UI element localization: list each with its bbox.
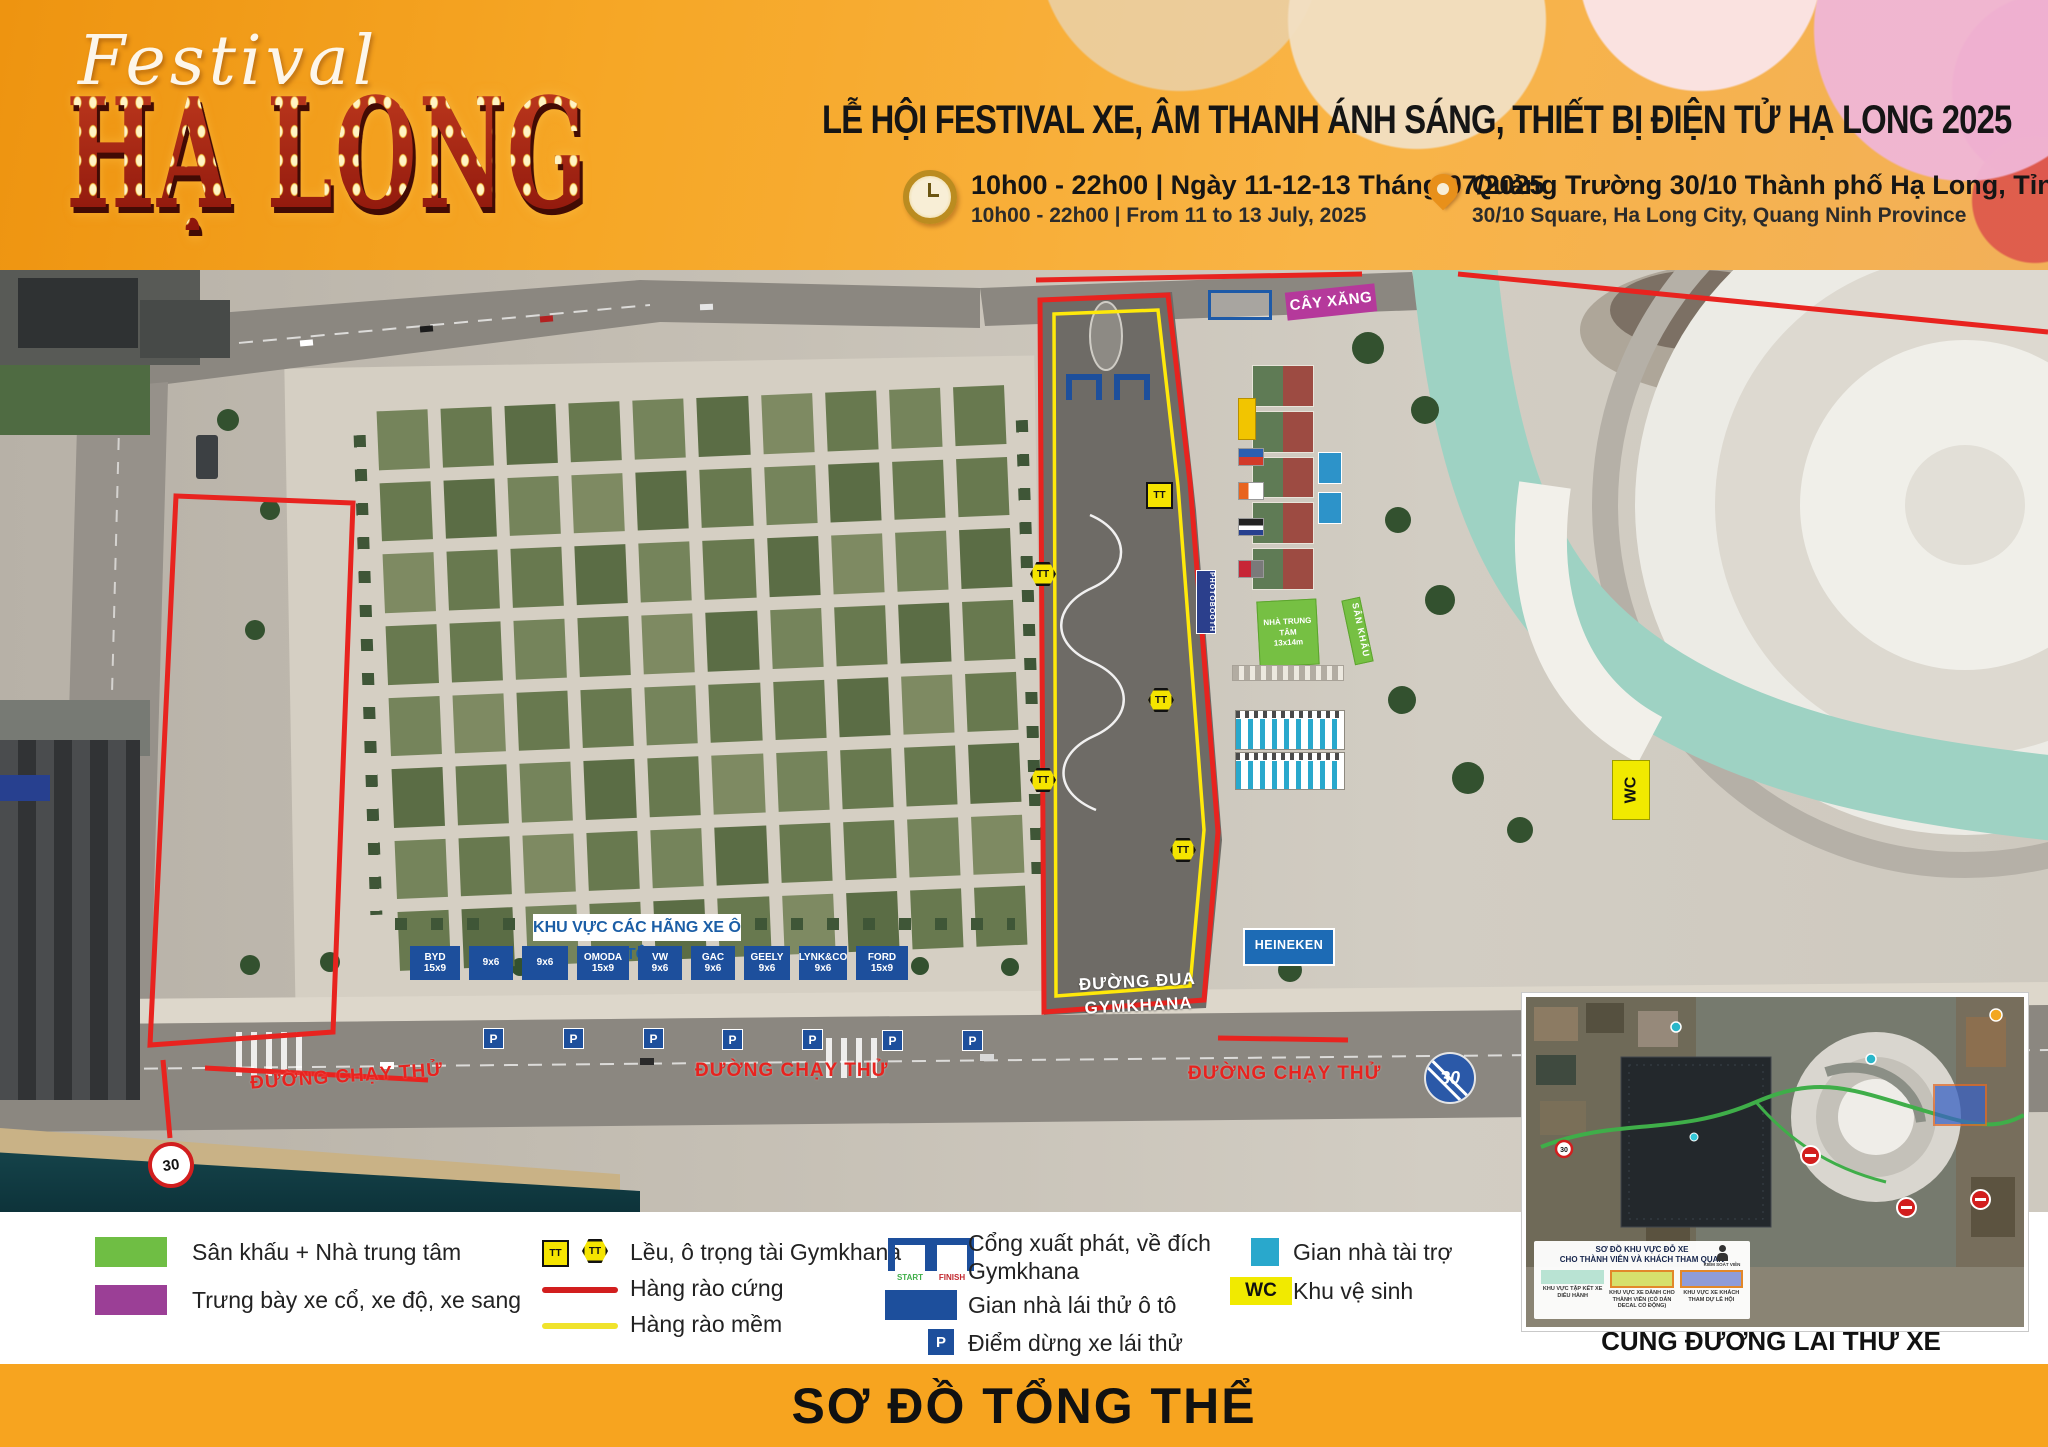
- strike-bar: [1428, 1056, 1473, 1101]
- brand-box-vw: VW9x6: [638, 946, 682, 980]
- wc-text: WC: [1622, 777, 1640, 804]
- test-drive-route-inset-map: 30 SƠ ĐỒ KHU VỰC ĐỖ XE CHO THÀNH VIÊN VÀ…: [1522, 993, 2028, 1331]
- legend-swatch-classic-cars: [95, 1285, 167, 1315]
- legend-tt-square: TT: [542, 1240, 569, 1267]
- sponsor-booth-blue: [1318, 492, 1342, 524]
- brand-box-byd: BYD15x9: [410, 946, 460, 980]
- legend-label: Hàng rào mềm: [630, 1311, 782, 1338]
- end-speed-limit-sign: 30: [1424, 1052, 1476, 1104]
- logo-marquee-text: HẠ LONG: [66, 78, 589, 230]
- photobooth-label: PHOTOBOOTH: [1196, 570, 1216, 634]
- gas-station-canopy: [1208, 290, 1272, 320]
- stop-point-marker: P: [962, 1030, 983, 1051]
- central-house-line2: 13x14m: [1259, 637, 1317, 650]
- inset-parking-legend: SƠ ĐỒ KHU VỰC ĐỖ XE CHO THÀNH VIÊN VÀ KH…: [1534, 1241, 1750, 1319]
- location-info: Quảng Trường 30/10 Thành phố Hạ Long, Tỉ…: [1428, 170, 2048, 228]
- sponsor-booth-blue: [1318, 452, 1342, 484]
- legend-swatch-stage: [95, 1237, 167, 1267]
- stop-point-marker: P: [722, 1029, 743, 1050]
- legend-label: Gian nhà tài trợ: [1293, 1239, 1453, 1266]
- legend-label: Điểm dừng xe lái thử: [968, 1330, 1183, 1357]
- start-caption: START: [888, 1273, 932, 1282]
- legend-sponsor-house-swatch: [1251, 1238, 1279, 1266]
- clock-icon: [903, 170, 957, 224]
- festival-map-poster: Festival HẠ LONG LỄ HỘI FESTIVAL XE, ÂM …: [0, 0, 2048, 1447]
- central-house-label: NHÀ TRUNG TÂM 13x14m: [1256, 598, 1319, 667]
- brand-box: 9x6: [469, 946, 513, 980]
- sponsor-house-row: [1235, 752, 1345, 790]
- zone-guests: KHU VỰC XE KHÁCH THAM DỰ LỄ HỘI: [1677, 1267, 1746, 1310]
- no-entry-sign: [1800, 1145, 1821, 1166]
- legend-label: Trưng bày xe cổ, xe độ, xe sang: [192, 1287, 521, 1314]
- wc-zone-label: WC: [1612, 760, 1650, 820]
- location-en: 30/10 Square, Ha Long City, Quang Ninh P…: [1472, 204, 2048, 228]
- zone-parade: KHU VỰC TẬP KẾT XE DIỄU HÀNH: [1538, 1267, 1607, 1310]
- brand-box-lynkco: LYNK&CO9x6: [799, 946, 847, 980]
- stop-point-marker: P: [802, 1029, 823, 1050]
- header-banner: Festival HẠ LONG LỄ HỘI FESTIVAL XE, ÂM …: [0, 0, 2048, 270]
- footer-bar: SƠ ĐỒ TỔNG THỂ: [0, 1364, 2048, 1447]
- finish-gate-icon: [1114, 374, 1150, 400]
- legend-label: Hàng rào cứng: [630, 1275, 784, 1302]
- legend-hard-fence-line: [542, 1287, 618, 1293]
- sponsor-logo-chip: [1238, 560, 1264, 578]
- brand-box-geely: GEELY9x6: [744, 946, 790, 980]
- legend-wc-swatch: WC: [1230, 1277, 1292, 1305]
- gymkhana-track-label: ĐƯỜNG ĐUA GYMKHANA: [1057, 966, 1219, 1022]
- referee-tent-marker: TT: [1146, 482, 1173, 509]
- car-brand-row: BYD15x9 9x6 9x6 OMODA15x9 VW9x6 GAC9x6 G…: [410, 946, 908, 980]
- map-pin-icon: [1422, 168, 1464, 210]
- brand-box-gac: GAC9x6: [691, 946, 735, 980]
- sponsor-logo-chip: [1238, 518, 1264, 536]
- legend-label: Sân khấu + Nhà trung tâm: [192, 1239, 461, 1266]
- stop-point-marker: P: [882, 1030, 903, 1051]
- legend-soft-fence-line: [542, 1323, 618, 1329]
- sponsor-logo-chip: [1238, 482, 1264, 500]
- legend-label: Gian nhà lái thử ô tô: [968, 1292, 1176, 1319]
- inset-zone-row: KHU VỰC TẬP KẾT XE DIỄU HÀNH KHU VỰC XE …: [1538, 1267, 1746, 1310]
- stop-point-marker: P: [483, 1028, 504, 1049]
- stop-point-marker: P: [563, 1028, 584, 1049]
- sponsor-house-row: [1235, 710, 1345, 750]
- test-road-label: ĐƯỜNG CHẠY THỬ: [695, 1060, 888, 1082]
- sponsor-court-grid: [1252, 365, 1314, 590]
- brand-box-omoda: OMODA15x9: [577, 946, 629, 980]
- controller-label: KIỂM SOÁT VIÊN: [1702, 1262, 1742, 1267]
- legend-start-gate: START: [888, 1238, 932, 1282]
- legend-tt-hexagon: TT: [582, 1239, 608, 1263]
- test-road-label: ĐƯỜNG CHẠY THỬ: [1188, 1063, 1381, 1085]
- legend-label: Cổng xuất phát, về đíchGymkhana: [968, 1230, 1211, 1285]
- no-entry-sign: [1896, 1197, 1917, 1218]
- zone-members: KHU VỰC XE DÀNH CHO THÀNH VIÊN (CÓ DÁN D…: [1607, 1267, 1676, 1310]
- start-gate-icon: [1066, 374, 1102, 400]
- brand-box-ford: FORD15x9: [856, 946, 908, 980]
- tent-row: [1232, 665, 1344, 681]
- controller-person-icon: KIỂM SOÁT VIÊN: [1702, 1245, 1742, 1267]
- legend-label: Lều, ô trọng tài Gymkhana: [630, 1239, 901, 1266]
- legend-label: Khu vệ sinh: [1293, 1278, 1413, 1305]
- event-title: LỄ HỘI FESTIVAL XE, ÂM THANH ÁNH SÁNG, T…: [822, 98, 2011, 143]
- brand-box: 9x6: [522, 946, 568, 980]
- svg-text:30: 30: [1560, 1147, 1568, 1154]
- overall-plan-title: SƠ ĐỒ TỔNG THỂ: [791, 1377, 1256, 1435]
- sponsor-logo-chip: [1238, 448, 1264, 466]
- stop-point-marker: P: [643, 1028, 664, 1049]
- car-brands-zone-title: KHU VỰC CÁC HÃNG XE Ô TÔ: [533, 914, 741, 941]
- no-entry-sign: [1970, 1189, 1991, 1210]
- legend-test-drive-house-swatch: [885, 1290, 957, 1320]
- sponsor-logo-chip-yellow: [1238, 398, 1256, 440]
- legend-p-marker: P: [927, 1328, 955, 1356]
- location-vi: Quảng Trường 30/10 Thành phố Hạ Long, Tỉ…: [1472, 170, 2048, 201]
- heineken-booth-label: HEINEKEN: [1243, 928, 1335, 966]
